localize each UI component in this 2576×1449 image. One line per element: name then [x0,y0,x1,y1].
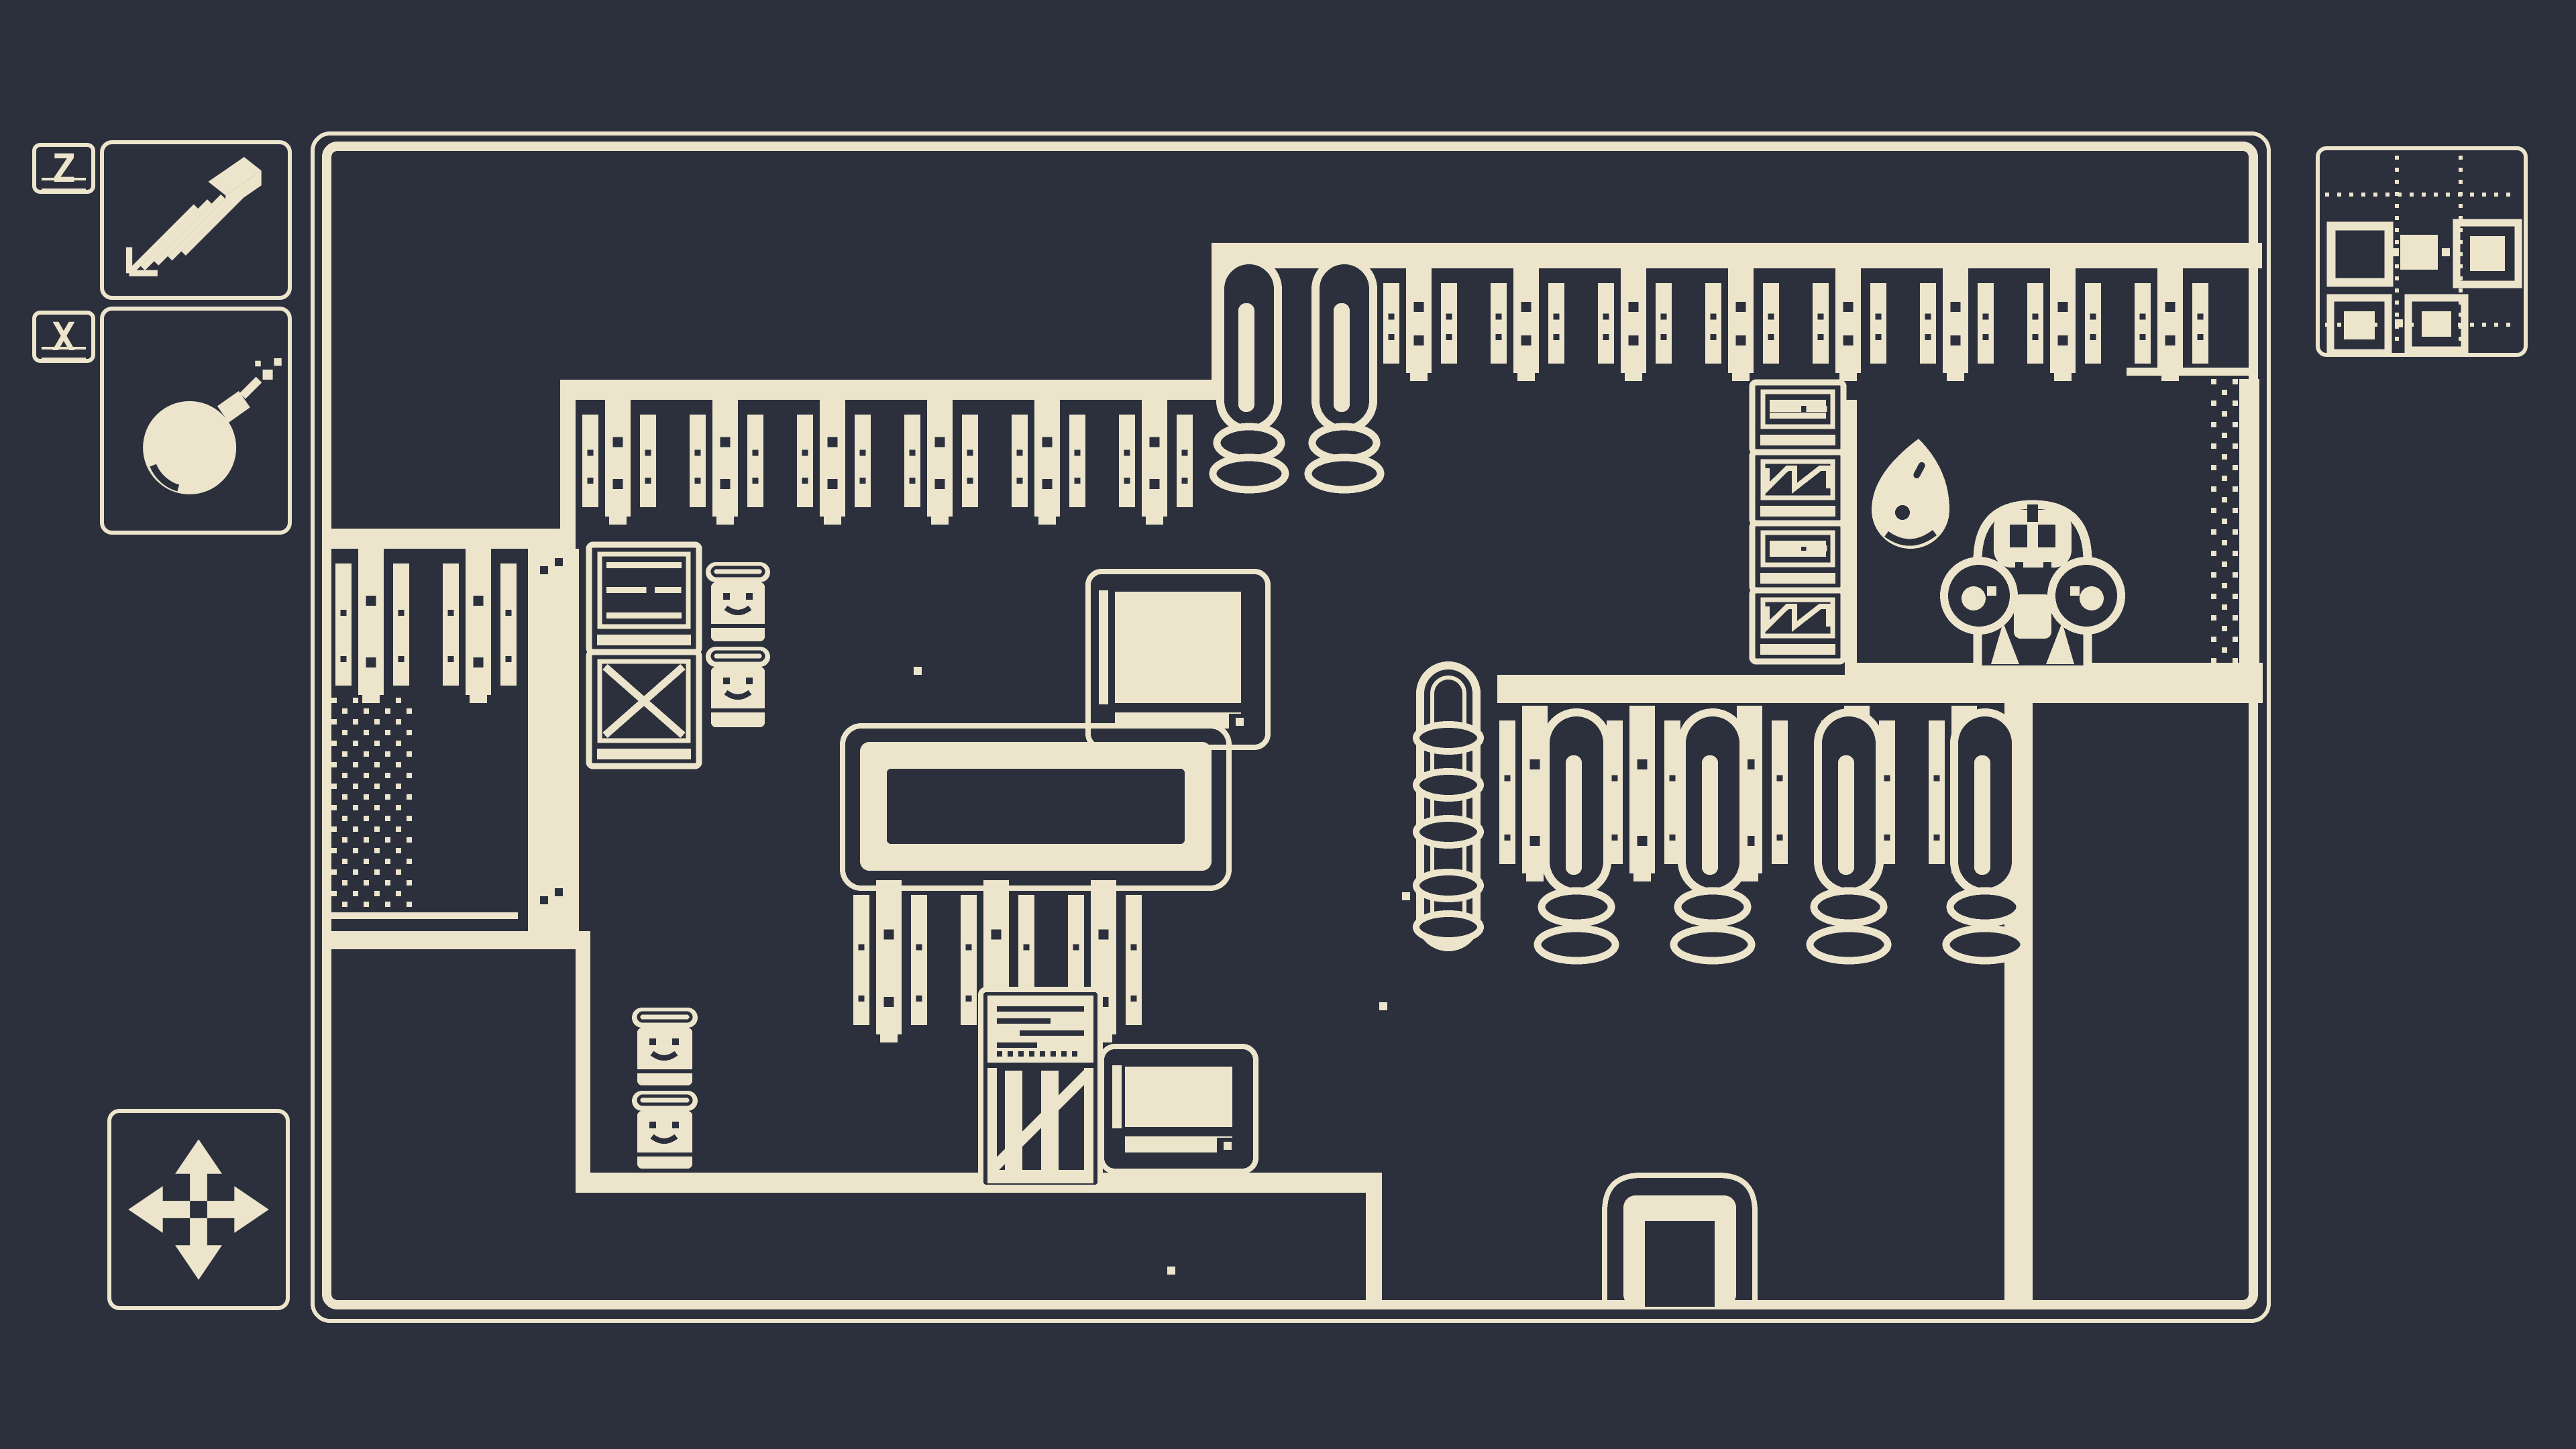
supply-box [1088,572,1268,747]
fence [1383,268,2208,381]
floor-speck [1379,1002,1387,1010]
key-badge-underline [42,347,86,360]
crate-zigzag [1752,452,1843,523]
move-arrows-icon [115,1117,282,1302]
barrel [706,562,770,641]
wall-vert-pocket [1845,400,1857,676]
sign-board [843,726,1229,888]
floor-speck [1402,892,1410,900]
alcove-floor-line [331,912,518,919]
wall-counter-band [1497,675,2263,703]
bomb-icon [109,317,283,525]
floor-speck [1167,1267,1175,1275]
action-button-bomb[interactable] [100,307,292,535]
barrel [706,647,770,727]
doorway [1605,1175,1755,1307]
wall-connector-left [560,380,576,545]
door-crate [981,989,1100,1187]
wall-band-top-left [567,380,1236,400]
crate-slat [1752,523,1843,590]
pipe-capsule [1674,712,1752,961]
wall-pillar [528,549,579,931]
game-viewport[interactable]: Z X [0,0,2576,1449]
pipe-capsule [1810,712,1888,961]
crate-slat [1752,382,1843,452]
pipe-capsule [1308,260,1381,490]
barrel [632,1091,698,1169]
minimap-grid [2320,150,2524,353]
key-badge-x: X [32,311,95,363]
wall-band-top-right [1212,243,2262,268]
floor-speck [914,667,922,675]
pipe-capsule [1213,260,1285,490]
frog-robot [1944,504,2121,665]
wall-vert-left [576,931,590,1181]
key-badge-z: Z [32,143,95,194]
key-badge-underline [42,178,86,191]
wall-step-bottom [1366,1173,1382,1307]
wall-band-far-left [331,529,576,549]
droplet-creature [1872,439,1949,549]
coil-pipe [1416,665,1481,947]
right-dither-solid [2239,379,2259,676]
wall-band-left-lower [331,931,578,949]
right-skirt-line [2127,368,2258,376]
minimap [2316,146,2528,357]
fence [582,400,1193,525]
jump-stack-icon [109,150,283,290]
game-scene [0,0,2576,1449]
pipe-capsule [1538,712,1615,961]
crate-x [589,652,699,766]
fence [335,549,517,703]
barrel [632,1008,698,1085]
crate-zigzag [1752,590,1843,661]
move-button[interactable] [107,1109,290,1310]
crate-slat [589,545,699,652]
alcove-dither [331,698,412,907]
supply-box [1102,1046,1256,1171]
right-dither [2211,379,2238,674]
action-button-jump[interactable] [100,140,292,300]
